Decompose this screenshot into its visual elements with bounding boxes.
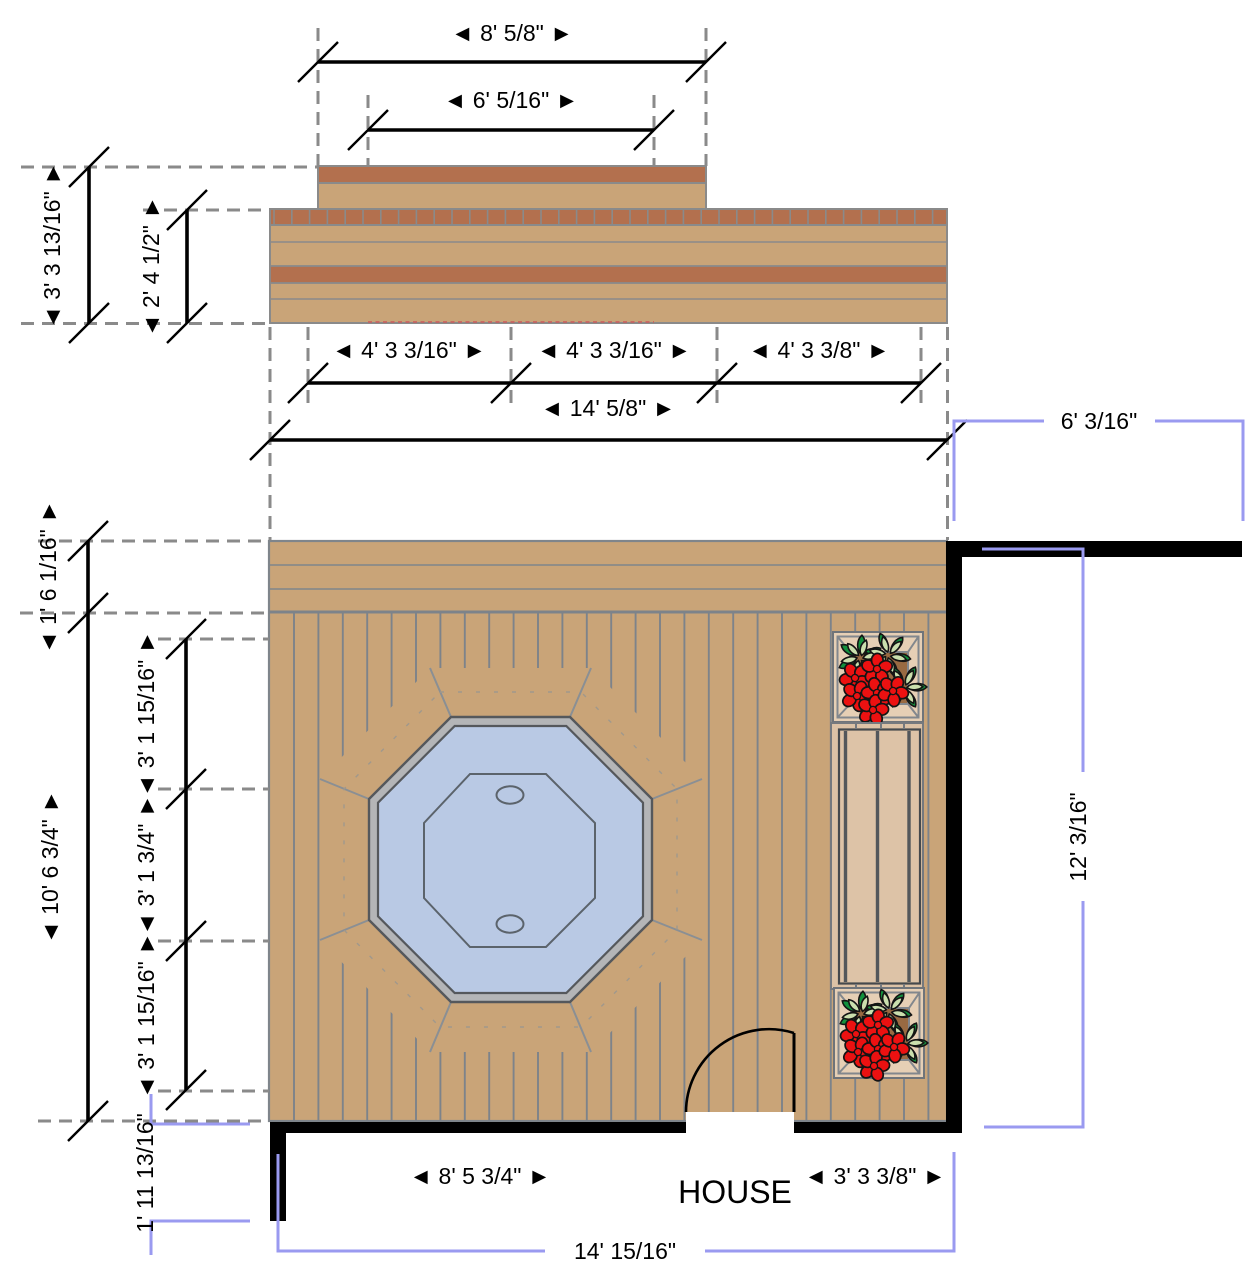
svg-text:◄ 3' 3 13/16" ►: ◄ 3' 3 13/16" ► [39,162,65,329]
svg-text:◄ 10' 6 3/4" ►: ◄ 10' 6 3/4" ► [37,790,63,944]
svg-text:◄ 3' 3 3/8" ►: ◄ 3' 3 3/8" ► [804,1163,945,1189]
svg-text:◄ 6' 5/16" ►: ◄ 6' 5/16" ► [444,87,579,113]
svg-text:◄ 3' 1 3/4" ►: ◄ 3' 1 3/4" ► [133,794,159,935]
svg-text:◄ 3' 1 15/16" ►: ◄ 3' 1 15/16" ► [133,631,159,798]
svg-text:6' 3/16": 6' 3/16" [1061,408,1138,434]
svg-text:◄ 4' 3 3/16" ►: ◄ 4' 3 3/16" ► [537,337,691,363]
svg-text:◄ 8' 5/8" ►: ◄ 8' 5/8" ► [451,20,573,46]
svg-text:◄ 3' 1 15/16" ►: ◄ 3' 1 15/16" ► [133,932,159,1099]
svg-text:HOUSE: HOUSE [678,1174,792,1210]
svg-text:◄ 4' 3 3/16" ►: ◄ 4' 3 3/16" ► [332,337,486,363]
svg-text:1' 11 13/16": 1' 11 13/16" [132,1113,158,1233]
svg-text:◄ 14' 5/8" ►: ◄ 14' 5/8" ► [541,395,676,421]
svg-text:14' 15/16": 14' 15/16" [574,1238,676,1264]
svg-text:◄ 4' 3 3/8" ►: ◄ 4' 3 3/8" ► [748,337,889,363]
svg-text:◄ 1' 6 1/16" ►: ◄ 1' 6 1/16" ► [35,500,61,654]
svg-text:◄ 2' 4 1/2" ►: ◄ 2' 4 1/2" ► [138,196,164,337]
svg-text:12' 3/16": 12' 3/16" [1065,792,1091,881]
svg-text:◄ 8' 5 3/4" ►: ◄ 8' 5 3/4" ► [409,1163,550,1189]
